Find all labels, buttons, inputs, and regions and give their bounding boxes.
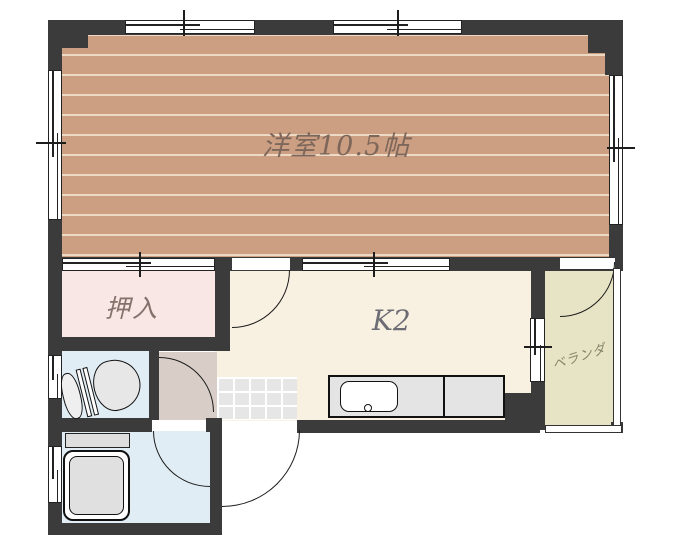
doorway-bath — [152, 420, 206, 431]
window-tick — [524, 346, 552, 348]
wall-closet-bottom — [48, 337, 230, 351]
window-tick — [36, 142, 66, 144]
doorway-western-kitchen — [232, 258, 290, 270]
kitchen-counter-divider — [443, 377, 445, 416]
window-tick — [397, 10, 399, 36]
floor-plan: 洋室10.5帖 押入 K2 ベランダ — [0, 0, 700, 554]
wall-toilet-right — [149, 351, 159, 422]
wall-veranda-lower — [531, 382, 545, 430]
window-tick — [183, 10, 185, 36]
sliding-window-kitchen — [302, 258, 450, 271]
veranda-railing-bottom — [545, 425, 622, 433]
label-kitchen: K2 — [372, 304, 411, 337]
door-arc-entrance — [222, 430, 300, 507]
wall-bath-bottom — [48, 523, 222, 535]
window-kitchen-veranda — [530, 318, 545, 382]
window-left-western — [48, 70, 62, 220]
bath-shelf — [65, 433, 130, 448]
wall-bath-top — [48, 418, 152, 432]
window-tick — [373, 252, 375, 277]
wall-veranda-upper — [531, 257, 545, 318]
window-bath — [48, 446, 62, 503]
genkan-tiles — [217, 377, 297, 420]
window-top-left — [125, 20, 255, 34]
label-closet: 押入 — [105, 289, 159, 325]
wall-kitchen-bottom — [297, 420, 540, 433]
bathtub-inner — [69, 456, 124, 515]
veranda-railing-right — [613, 268, 621, 428]
sink-drain — [364, 404, 372, 412]
window-tick — [607, 147, 635, 149]
wall-entrance-side — [210, 418, 222, 535]
window-tick — [139, 252, 141, 277]
label-western-room: 洋室10.5帖 — [262, 124, 410, 163]
window-right-western — [609, 75, 623, 225]
